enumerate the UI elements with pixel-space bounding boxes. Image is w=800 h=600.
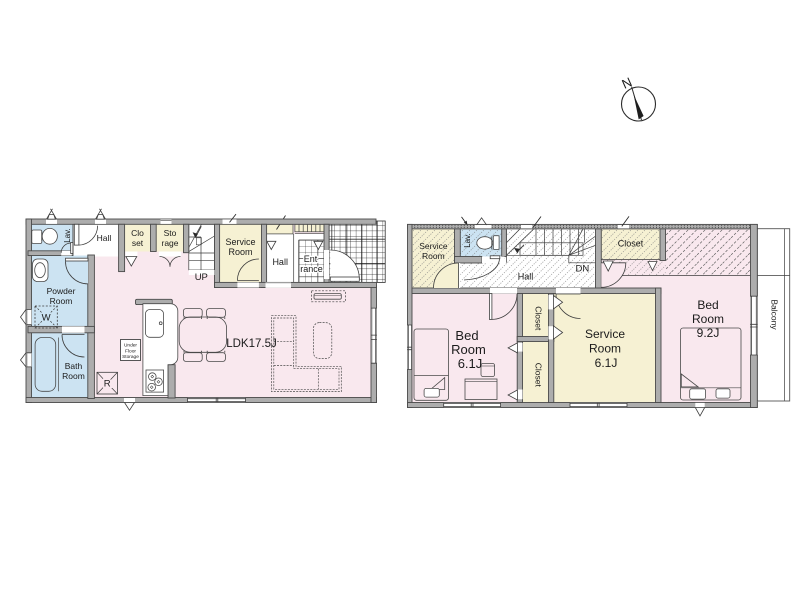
svg-text:Balcony: Balcony: [770, 299, 780, 330]
svg-text:Room: Room: [228, 247, 252, 257]
svg-text:Lav.: Lav.: [463, 233, 472, 248]
svg-text:Bath: Bath: [65, 361, 83, 371]
svg-text:Closet: Closet: [618, 239, 644, 249]
svg-text:Hall: Hall: [272, 257, 288, 267]
svg-text:Powder: Powder: [47, 286, 76, 296]
svg-text:Bed: Bed: [697, 298, 718, 312]
svg-text:Closet: Closet: [534, 363, 544, 388]
svg-text:6.1J: 6.1J: [595, 356, 618, 370]
svg-text:Service: Service: [585, 327, 625, 341]
svg-text:Room: Room: [589, 342, 621, 356]
svg-text:W: W: [42, 313, 51, 324]
svg-text:6.1J: 6.1J: [458, 356, 483, 371]
svg-text:rage: rage: [161, 238, 178, 248]
svg-text:Lav.: Lav.: [63, 228, 72, 243]
svg-text:DN: DN: [576, 264, 590, 275]
svg-text:Hall: Hall: [97, 233, 112, 243]
svg-text:Service: Service: [419, 241, 448, 251]
svg-text:rance: rance: [300, 264, 323, 274]
svg-text:Room: Room: [50, 296, 73, 306]
svg-text:Closet: Closet: [534, 306, 544, 331]
svg-text:UP: UP: [195, 272, 208, 283]
svg-text:Ent: Ent: [304, 254, 318, 264]
svg-text:LDK17.5J: LDK17.5J: [226, 338, 277, 350]
svg-text:Floor: Floor: [125, 348, 136, 354]
svg-text:Clo: Clo: [131, 228, 144, 238]
svg-text:Bed: Bed: [455, 328, 478, 343]
svg-text:set: set: [132, 238, 144, 248]
svg-text:Hall: Hall: [518, 272, 534, 282]
svg-text:Under: Under: [124, 343, 137, 349]
svg-text:Room: Room: [422, 251, 445, 261]
svg-text:9.2J: 9.2J: [697, 326, 720, 340]
svg-text:Service: Service: [225, 237, 255, 247]
svg-text:Room: Room: [692, 312, 724, 326]
svg-text:Room: Room: [451, 342, 486, 357]
svg-text:Storage: Storage: [122, 354, 139, 360]
svg-text:Sto: Sto: [164, 228, 177, 238]
svg-text:Room: Room: [62, 371, 85, 381]
svg-text:R: R: [104, 379, 111, 390]
